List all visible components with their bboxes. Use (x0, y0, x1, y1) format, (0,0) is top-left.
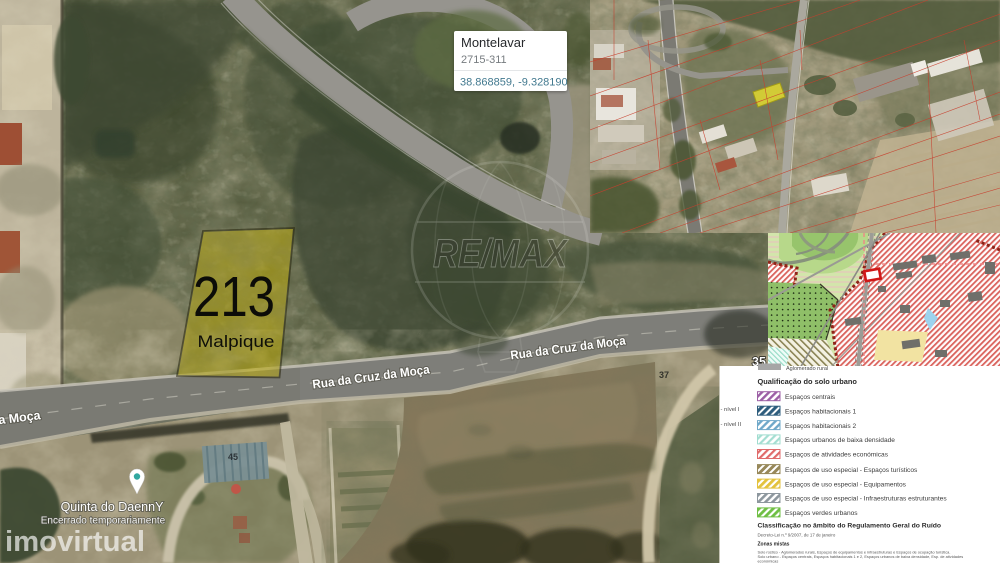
svg-text:Aglomerado rural: Aglomerado rural (786, 366, 828, 372)
svg-text:45: 45 (228, 452, 238, 462)
svg-text:Espaços de uso especial - Infr: Espaços de uso especial - Infraestrutura… (785, 496, 947, 503)
svg-text:- nível I: - nível I (721, 407, 740, 413)
svg-text:Espaços centrais: Espaços centrais (785, 394, 836, 401)
svg-text:Solo urbano - Espaços centrais: Solo urbano - Espaços centrais, Espaços … (758, 554, 964, 559)
svg-text:Decreto-Lei n.º 9/2007, de 17: Decreto-Lei n.º 9/2007, de 17 de janeiro (758, 533, 836, 538)
svg-text:Espaços de uso especial - Equi: Espaços de uso especial - Equipamentos (785, 481, 907, 488)
svg-text:RE/MAX: RE/MAX (433, 232, 569, 276)
svg-text:Classificação no âmbito do Reg: Classificação no âmbito do Regulamento G… (758, 523, 942, 530)
svg-text:38.868859, -9.328190: 38.868859, -9.328190 (460, 77, 568, 89)
svg-text:Encerrado temporariamente: Encerrado temporariamente (41, 516, 166, 527)
svg-text:- nível II: - nível II (721, 422, 742, 428)
svg-text:Zonas mistas: Zonas mistas (758, 542, 790, 548)
svg-text:Espaços de uso especial - Espa: Espaços de uso especial - Espaços turíst… (785, 467, 918, 474)
svg-text:Espaços urbanos de baixa densi: Espaços urbanos de baixa densidade (785, 437, 895, 444)
svg-text:2715-311: 2715-311 (461, 54, 507, 66)
svg-text:Espaços habitacionais 1: Espaços habitacionais 1 (785, 408, 856, 415)
svg-text:213: 213 (193, 265, 275, 329)
svg-text:económicas: económicas (758, 559, 779, 563)
svg-text:Montelavar: Montelavar (461, 35, 526, 50)
svg-text:Quinta do DaennY: Quinta do DaennY (61, 500, 165, 514)
svg-text:Espaços habitacionais 2: Espaços habitacionais 2 (785, 423, 856, 430)
svg-text:37: 37 (659, 370, 669, 380)
svg-text:Espaços de atividades económic: Espaços de atividades económicas (785, 452, 889, 459)
svg-text:Qualificação do solo urbano: Qualificação do solo urbano (758, 377, 858, 386)
svg-text:imovirtual: imovirtual (5, 526, 145, 558)
svg-text:Espaços verdes urbanos: Espaços verdes urbanos (785, 510, 858, 517)
svg-text:Malpique: Malpique (198, 333, 275, 351)
